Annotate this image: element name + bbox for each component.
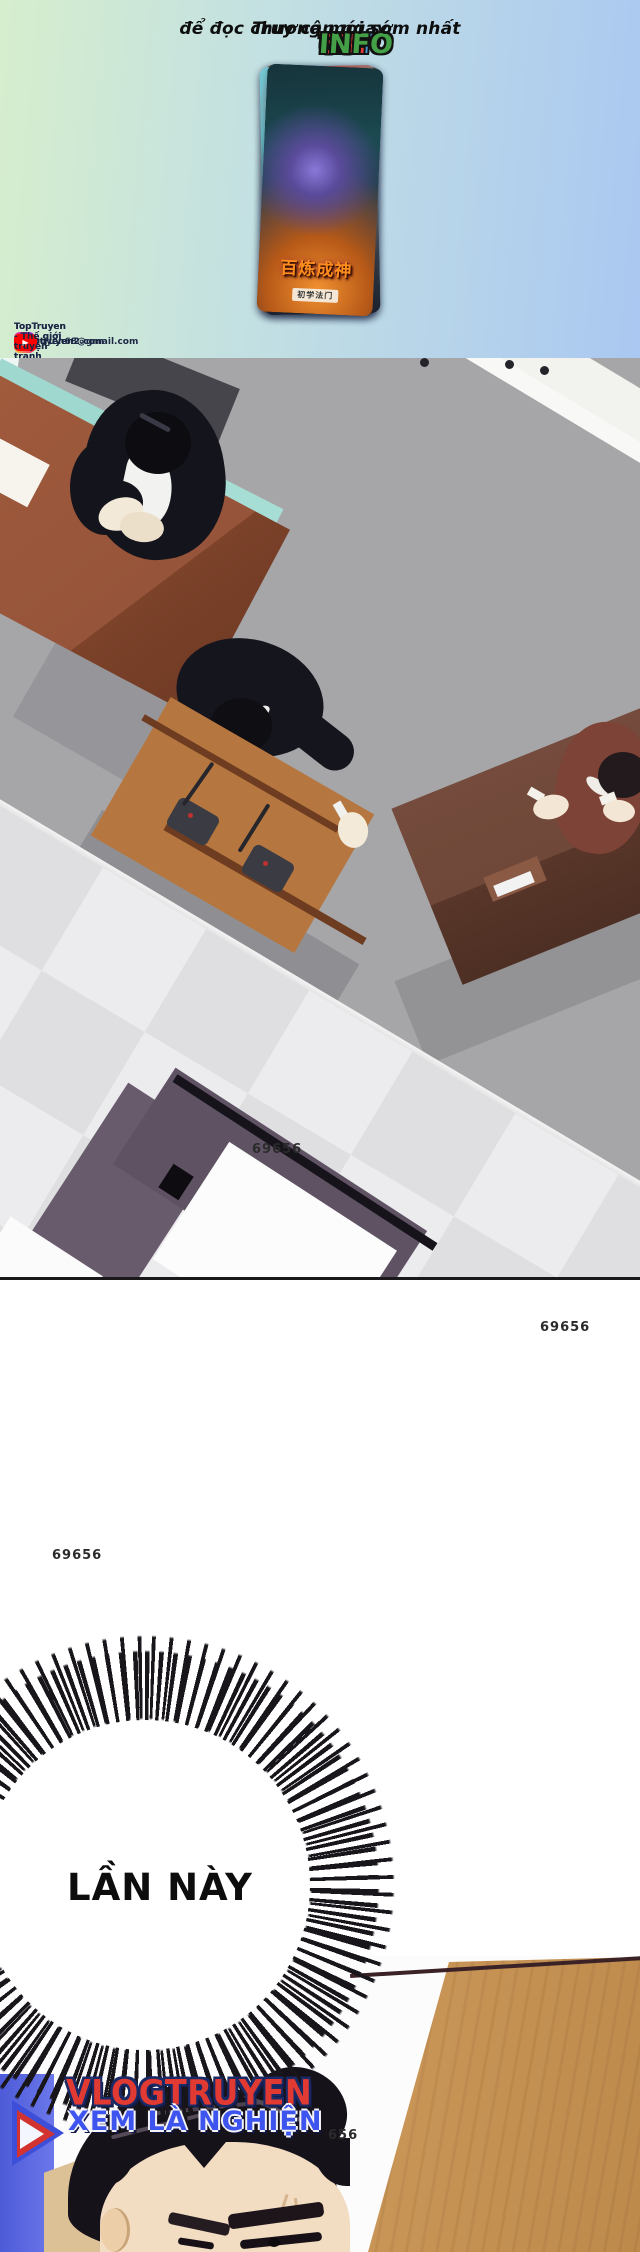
watermark-tagline: XEM LÀ NGHIỆN xyxy=(68,2106,322,2137)
promo-header: Truy cập ngay TOPTRUYEN68.INFO để đọc ch… xyxy=(0,0,640,358)
page-number-watermark: 69656 xyxy=(252,1142,302,1157)
cover-thumbnail-refine-god[interactable]: 百炼成神 初学法门 xyxy=(256,63,383,316)
widows-peak xyxy=(182,2142,226,2168)
social-links-row: f TopTruyen - Thế giới truyện tranh M to… xyxy=(0,326,640,358)
page-number-watermark: 69656 xyxy=(52,1548,102,1563)
microphone-light xyxy=(263,861,268,866)
man-ear xyxy=(100,2208,130,2252)
page-number-watermark-partial: 656 xyxy=(328,2128,358,2143)
promo-banner[interactable]: Truy cập ngay TOPTRUYEN68.INFO để đọc ch… xyxy=(0,0,640,58)
social-label: TopTruyen - Thế giới truyện tranh xyxy=(14,322,66,362)
vlogtruyen-logo-icon-core xyxy=(20,2119,44,2149)
man-iris xyxy=(268,2238,280,2247)
comic-panel-courtroom: W/EO xyxy=(0,358,640,1280)
comic-reader-page: Truy cập ngay TOPTRUYEN68.INFO để đọc ch… xyxy=(0,0,640,2252)
distant-figure xyxy=(420,358,429,367)
microphone-light xyxy=(188,813,193,818)
distant-figure xyxy=(540,366,549,375)
maroon-man-hair xyxy=(598,752,640,798)
banner-stripe xyxy=(386,358,640,568)
cover-title: 百炼成神 xyxy=(258,252,375,282)
panel-border xyxy=(0,1277,640,1280)
speech-bubble-text: LẦN NÀY xyxy=(40,1866,280,1909)
cover-badge: 初学法门 xyxy=(292,288,339,303)
cover-thumbnail-row: THE DEVIL BUTLER 武炼巅峰 开局一座山 百炼成神 初学法门 xyxy=(0,60,640,320)
promo-suffix: để đọc chương mới sớm nhất xyxy=(179,19,460,39)
scene-wall-banner: W/EO xyxy=(410,358,640,528)
distant-figure xyxy=(505,360,514,369)
page-number-watermark: 69656 xyxy=(540,1320,590,1335)
